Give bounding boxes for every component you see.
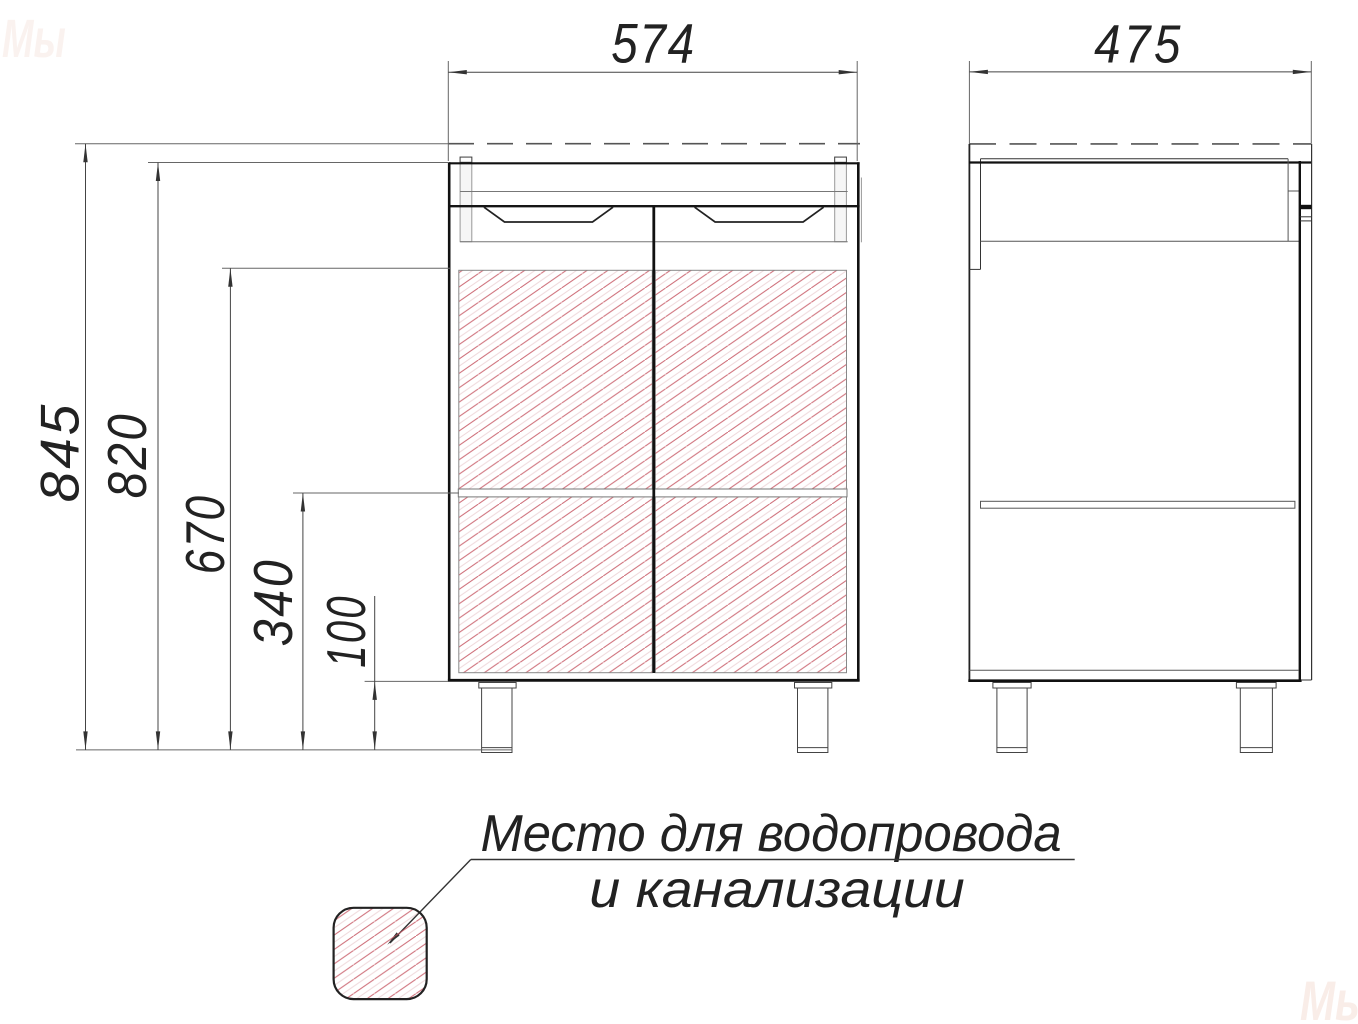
- svg-text:Мы: Мы: [2, 8, 66, 68]
- svg-text:475: 475: [1094, 14, 1184, 75]
- svg-text:340: 340: [242, 558, 304, 647]
- svg-text:Мы: Мы: [1300, 970, 1358, 1024]
- svg-text:845: 845: [29, 402, 91, 503]
- svg-text:670: 670: [174, 494, 236, 575]
- svg-text:574: 574: [611, 13, 695, 75]
- svg-text:820: 820: [97, 412, 158, 499]
- svg-text:Место для водопровода: Место для водопровода: [480, 803, 1061, 862]
- svg-text:100: 100: [316, 594, 378, 668]
- svg-text:и канализации: и канализации: [589, 861, 964, 919]
